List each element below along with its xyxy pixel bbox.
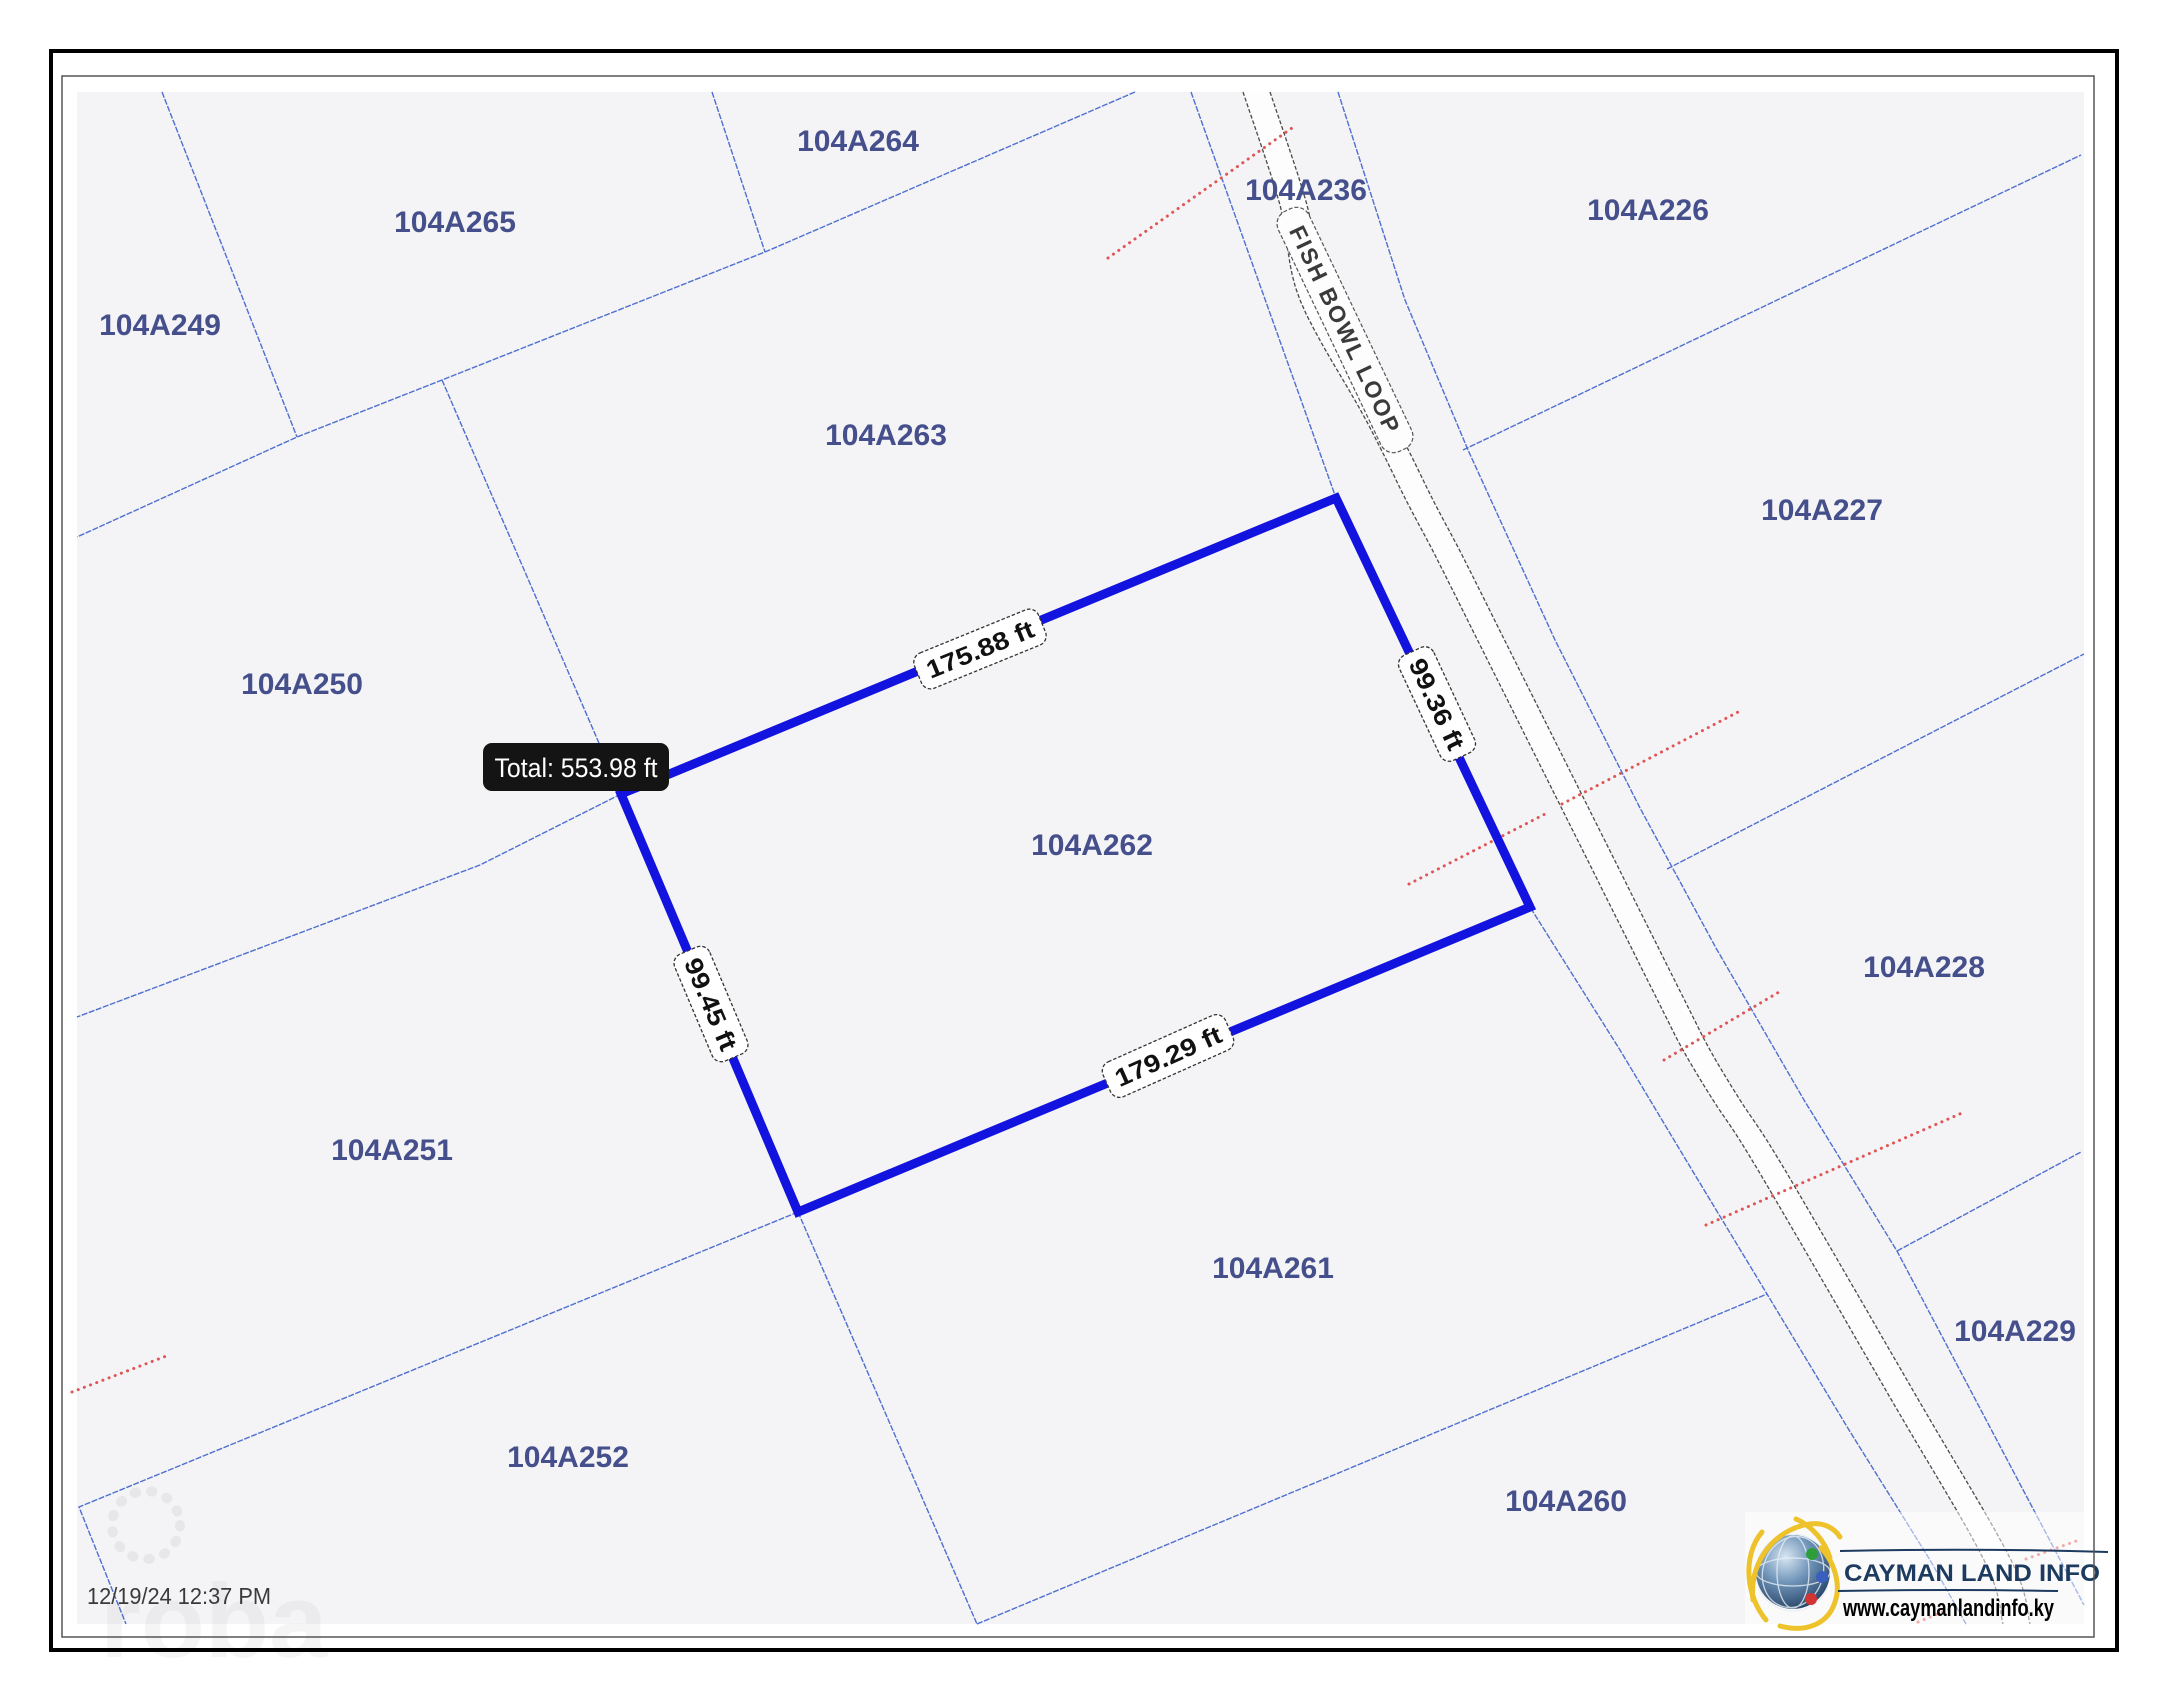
svg-text:104A250: 104A250 [241,668,363,701]
svg-text:www.caymanlandinfo.ky: www.caymanlandinfo.ky [1842,1595,2054,1622]
svg-text:104A228: 104A228 [1863,951,1985,984]
svg-text:104A229: 104A229 [1954,1315,2076,1348]
svg-text:104A226: 104A226 [1587,194,1709,227]
svg-text:104A265: 104A265 [394,206,516,239]
svg-text:CAYMAN LAND INFO: CAYMAN LAND INFO [1844,1560,2100,1587]
svg-text:roba: roba [100,1563,329,1680]
svg-text:104A249: 104A249 [99,309,221,342]
svg-text:104A252: 104A252 [507,1441,629,1474]
svg-text:104A264: 104A264 [797,125,919,158]
svg-text:104A251: 104A251 [331,1134,453,1167]
svg-text:104A236: 104A236 [1245,174,1367,207]
svg-text:104A260: 104A260 [1505,1485,1627,1518]
svg-text:Total: 553.98 ft: Total: 553.98 ft [495,753,658,783]
svg-text:104A261: 104A261 [1212,1252,1334,1285]
svg-text:104A263: 104A263 [825,419,947,452]
svg-text:12/19/24 12:37 PM: 12/19/24 12:37 PM [87,1583,271,1609]
svg-text:104A227: 104A227 [1761,494,1883,527]
svg-text:104A262: 104A262 [1031,829,1153,862]
